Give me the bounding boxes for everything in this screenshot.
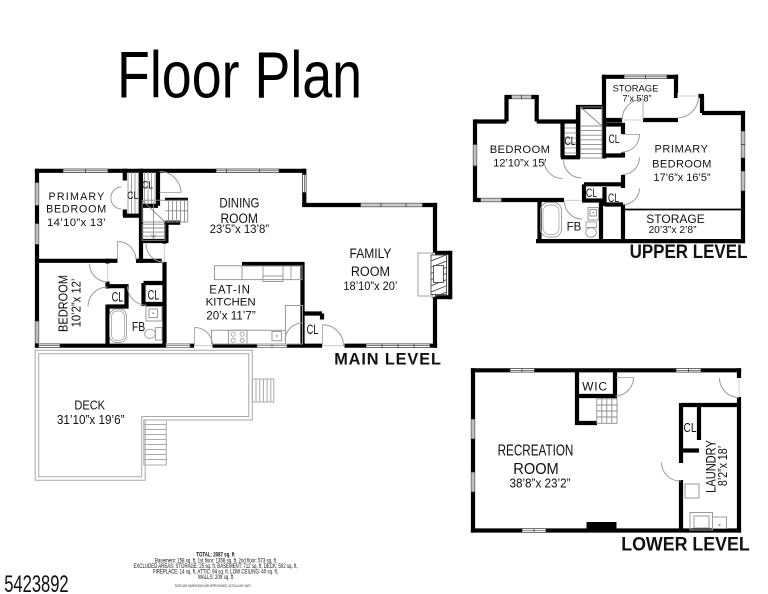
svg-text:PRIMARY: PRIMARY [49,191,106,203]
svg-text:12’10”x 15’: 12’10”x 15’ [493,158,546,170]
svg-text:23’5”x 13’8”: 23’5”x 13’8” [210,223,270,236]
svg-text:FB: FB [567,221,582,233]
svg-text:CL: CL [608,193,619,206]
svg-text:18’10”x 20’: 18’10”x 20’ [343,281,397,293]
svg-text:WALLS: 209 sq. ft: WALLS: 209 sq. ft [198,574,234,581]
svg-text:ROOM: ROOM [351,263,390,279]
svg-text:CL: CL [564,136,575,149]
svg-text:17’6”x 16’5”: 17’6”x 16’5” [653,172,710,184]
svg-text:20’3”x 2’8”: 20’3”x 2’8” [648,225,697,236]
svg-text:KITCHEN: KITCHEN [206,297,256,309]
svg-text:FB: FB [132,320,145,334]
svg-text:20’x 11’7”: 20’x 11’7” [206,309,256,322]
svg-text:7’x 5’8”: 7’x 5’8” [622,94,651,104]
svg-text:STORAGE: STORAGE [613,83,659,94]
svg-text:PRIMARY: PRIMARY [654,144,708,156]
svg-text:Floor Plan: Floor Plan [117,38,362,111]
svg-text:8’2”x 18’: 8’2”x 18’ [716,446,730,486]
svg-text:BEDROOM: BEDROOM [46,204,107,216]
svg-text:UPPER LEVEL: UPPER LEVEL [630,241,748,262]
svg-text:DINING: DINING [219,194,259,210]
svg-text:CL: CL [142,180,154,192]
svg-text:CL: CL [608,134,619,147]
svg-text:5423892: 5423892 [4,571,68,594]
svg-text:STORAGE: STORAGE [646,212,704,226]
svg-text:BEDROOM: BEDROOM [652,159,712,171]
svg-text:CL: CL [148,287,160,304]
svg-text:CL: CL [112,289,124,306]
svg-text:RECREATION: RECREATION [498,442,574,459]
svg-text:LOWER LEVEL: LOWER LEVEL [621,532,750,554]
svg-text:38’8”x 23’2”: 38’8”x 23’2” [509,476,570,491]
svg-text:MAIN LEVEL: MAIN LEVEL [334,351,442,369]
svg-text:CL: CL [127,190,139,202]
svg-text:WIC: WIC [582,380,608,394]
svg-text:SIZES AND DIMENSIONS ARE APPRO: SIZES AND DIMENSIONS ARE APPROXIMATE, AC… [175,584,252,589]
svg-text:BEDROOM: BEDROOM [490,144,551,156]
svg-text:FAMILY: FAMILY [350,245,392,261]
svg-text:CL: CL [586,188,597,201]
svg-text:31’10”x 19’6”: 31’10”x 19’6” [57,412,125,427]
svg-text:10’2”x 12’: 10’2”x 12’ [69,279,84,328]
svg-text:CL: CL [684,421,697,435]
svg-text:CL: CL [307,321,319,338]
svg-text:DECK: DECK [74,398,105,413]
svg-text:14’10”x 13’: 14’10”x 13’ [47,217,106,229]
svg-text:EAT-IN: EAT-IN [209,285,251,297]
